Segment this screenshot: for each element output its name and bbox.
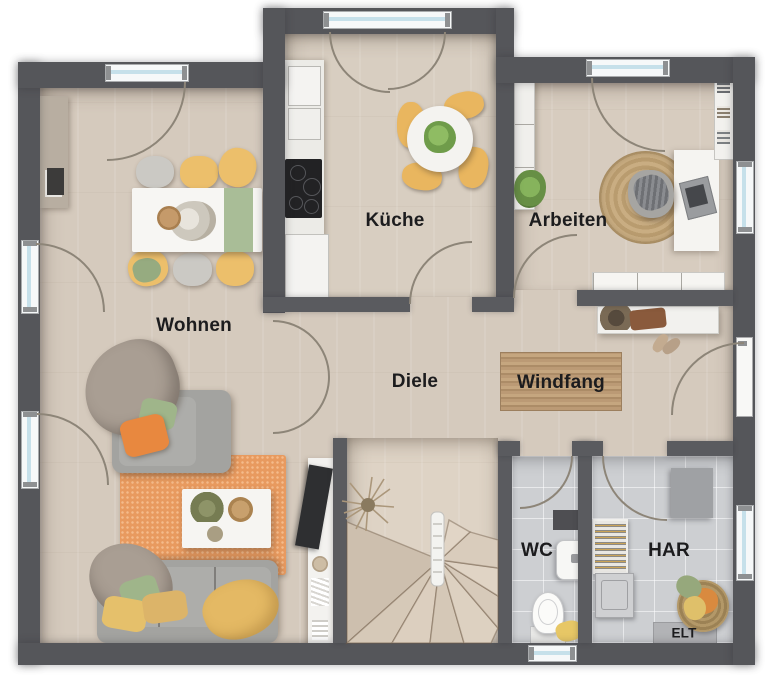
cabinet-decor-books (47, 168, 64, 195)
floor-stairwell (347, 438, 498, 643)
entrance-door-handle (738, 341, 747, 346)
room-label-wohnen: Wohnen (156, 315, 232, 337)
dining-chair (173, 253, 212, 286)
room-label-har: HAR (648, 540, 690, 562)
wall-stairwell (333, 438, 347, 643)
wall-wc-left (498, 441, 512, 643)
wall-har-top-pier (667, 441, 733, 456)
room-label-windfang: Windfang (517, 372, 605, 394)
window-kitchen-french (323, 11, 452, 29)
wall-office-bottom (577, 290, 733, 306)
room-label-kueche: Küche (365, 210, 424, 232)
wall-wc-har-divider (578, 441, 592, 643)
utility-box (671, 468, 713, 518)
room-label-elt: ELT (671, 626, 696, 641)
wc-shelf (553, 510, 578, 530)
console-decor (312, 556, 328, 572)
wall-kitchen-bottom-pier (472, 297, 514, 312)
cooktop-burner (304, 199, 319, 214)
books (717, 130, 730, 144)
coffee-table-vase (207, 526, 223, 542)
coffee-table-bowl (228, 497, 253, 522)
exterior-wall-bottom (18, 643, 755, 665)
coffee-table-plant (190, 492, 224, 522)
room-label-wc: WC (521, 540, 553, 562)
kitchen-sink-basin (288, 108, 321, 140)
cooktop-burner (289, 196, 303, 210)
wall-kitchen-bottom (263, 297, 410, 312)
room-label-diele: Diele (392, 371, 438, 393)
cooktop-burner (303, 178, 321, 196)
window-living-left (21, 411, 39, 489)
window-wc-bottom (528, 645, 577, 662)
washing-machine-lid (601, 580, 628, 610)
entrance-door (736, 337, 753, 417)
dining-chair (136, 156, 174, 188)
drying-rack (593, 519, 628, 574)
window-office-top (586, 59, 670, 77)
dining-chair (180, 156, 218, 189)
floor-plan: Küche Arbeiten Wohnen Diele Windfang WC … (0, 0, 775, 688)
bag-decor (629, 307, 667, 331)
dining-chair (216, 251, 254, 286)
wall-kitchen-office (496, 8, 514, 305)
books (717, 106, 730, 118)
window-living-top (105, 64, 189, 82)
wall-wc-top-pier (498, 441, 520, 456)
kitchen-base-cabinet (285, 234, 329, 299)
console-decor-books (311, 578, 329, 606)
room-label-arbeiten: Arbeiten (529, 210, 608, 232)
table-bowl (157, 206, 181, 230)
toilet-seat-line (538, 599, 558, 625)
books (717, 83, 730, 93)
cooktop-burner (290, 165, 306, 181)
exterior-wall-left (18, 62, 40, 665)
kitchen-table-plant (424, 121, 456, 153)
wall-wc-har-top-pier (572, 441, 603, 456)
window-har-right (736, 505, 754, 581)
wall-kitchen-left (263, 8, 285, 313)
kitchen-sink-unit (288, 66, 321, 106)
console-decor-speaker (312, 620, 328, 640)
window-office-right (736, 161, 754, 234)
window-dining-left (21, 240, 39, 314)
table-runner (224, 188, 253, 252)
